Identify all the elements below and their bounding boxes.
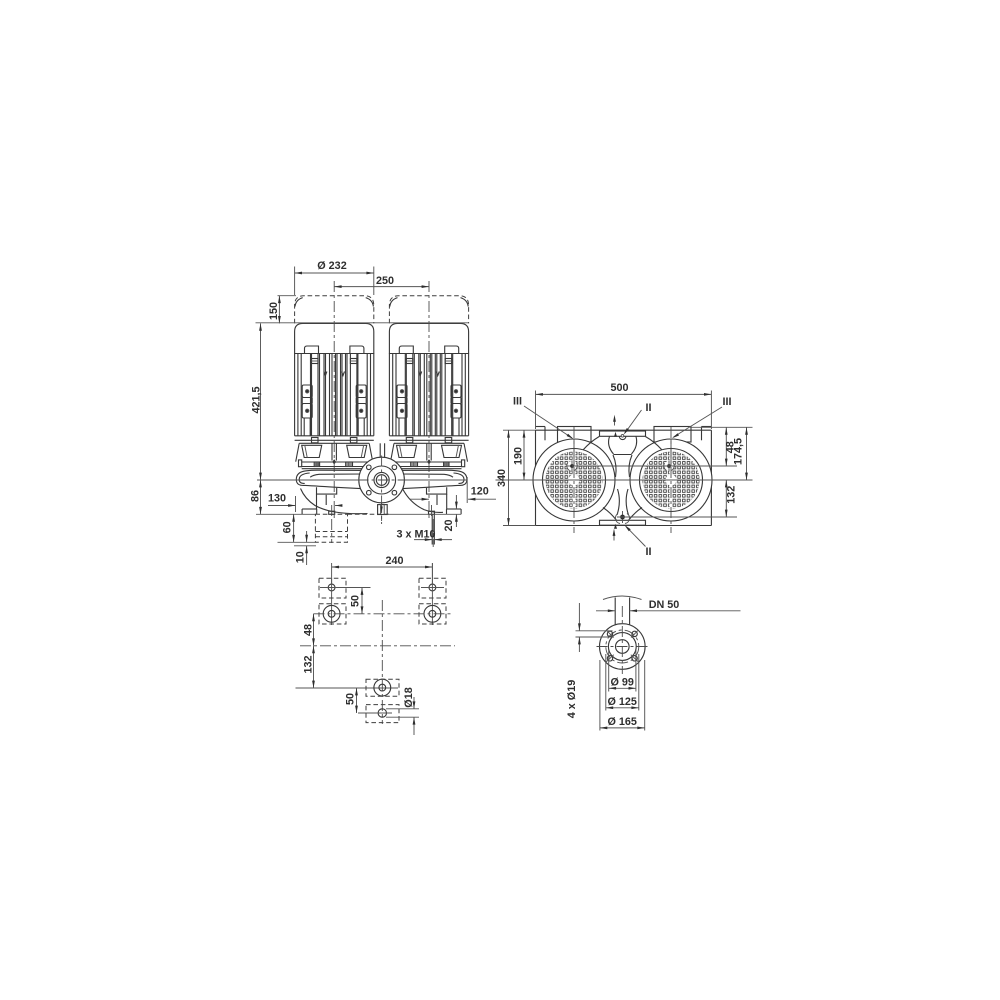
svg-text:4 x Ø19: 4 x Ø19 [566,680,578,718]
svg-text:II: II [646,546,652,558]
svg-text:Ø 232: Ø 232 [317,260,346,272]
svg-text:Ø 165: Ø 165 [607,716,636,728]
svg-text:20: 20 [443,519,455,531]
svg-text:132: 132 [726,486,738,504]
svg-text:III: III [513,396,522,408]
svg-text:174,5: 174,5 [733,438,745,465]
svg-text:Ø 99: Ø 99 [610,676,633,688]
svg-text:Ø 125: Ø 125 [607,696,636,708]
svg-text:50: 50 [344,693,356,705]
svg-text:250: 250 [376,275,394,287]
svg-text:48: 48 [302,624,314,636]
svg-text:240: 240 [385,555,403,567]
svg-text:190: 190 [513,447,525,465]
svg-text:132: 132 [302,655,314,673]
svg-text:10: 10 [295,551,307,563]
svg-text:Ø18: Ø18 [403,687,415,707]
svg-text:50: 50 [349,595,361,607]
svg-text:III: III [723,396,732,408]
svg-text:500: 500 [610,382,628,394]
svg-text:150: 150 [268,302,280,320]
svg-text:340: 340 [496,469,508,487]
svg-text:130: 130 [268,493,286,505]
svg-text:120: 120 [471,486,489,498]
svg-text:86: 86 [250,490,262,502]
svg-text:60: 60 [282,521,294,533]
svg-text:3 x M10: 3 x M10 [396,529,435,541]
svg-text:DN 50: DN 50 [649,599,680,611]
svg-text:II: II [646,402,652,414]
svg-text:421,5: 421,5 [250,386,262,413]
